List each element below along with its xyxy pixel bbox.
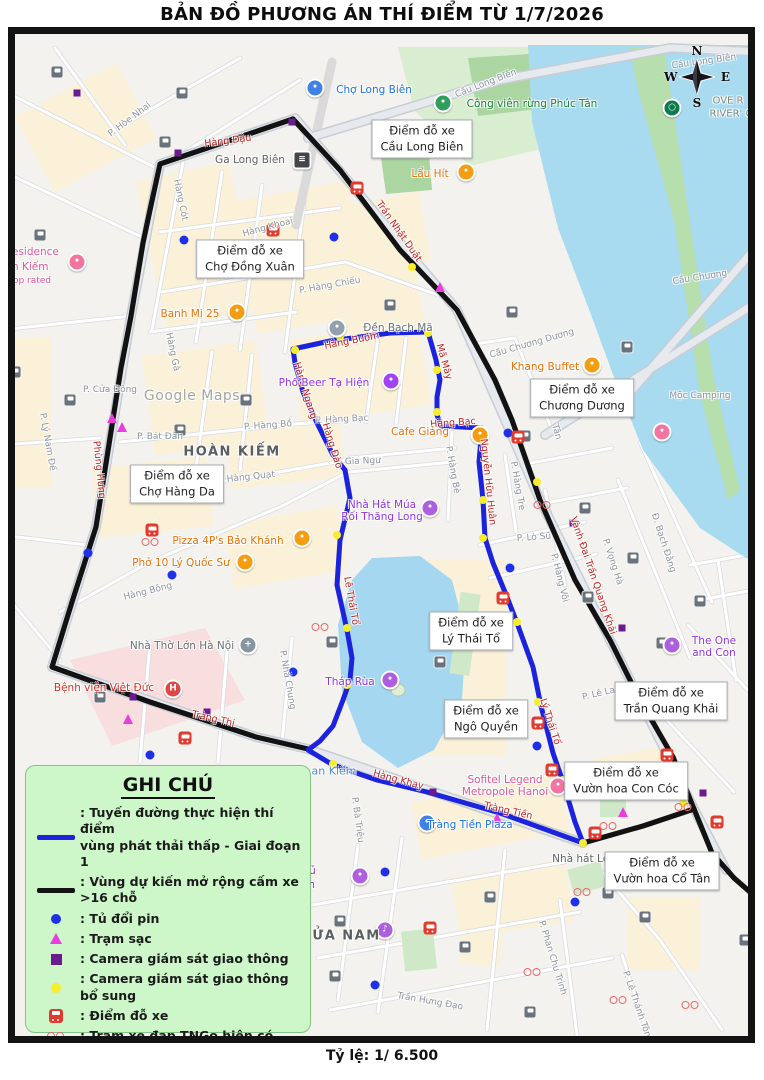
poi-label-line: The One [692,635,736,647]
road-label: P. Lê Lai [581,685,618,703]
poi-park-icon: • [434,94,453,113]
legend-item-camera-extra: : Camera giám sát giao thông bổ sung [32,971,302,1004]
poi-hotel-icon: • [653,423,672,442]
extra-camera-icon [433,408,441,416]
poi-label: The Oneand Con [692,635,736,659]
parking-station-line1: Điểm đỗ xe [539,382,625,398]
legend-label: : Camera giám sát giao thông bổ sung [80,971,302,1004]
charging-station-icon [117,422,127,432]
transit-stop-icon [739,934,752,947]
road-label: P. Phan Chu Trinh [536,920,568,997]
traffic-camera-icon [175,150,182,157]
battery-dot-icon [51,914,61,924]
poi-label: Banh Mi 25 [161,308,220,320]
transit-stop-icon [329,970,342,983]
black-route-line-icon [37,888,75,893]
parking-station-label: Điểm đỗ xeNgô Quyền [444,699,528,738]
poi-label: RIVER' C [710,108,753,120]
poi-label: Phở 10 Lý Quốc Sư [132,557,230,569]
tngo-bike-station-icon [312,622,329,632]
scale-note: Tỷ lệ: 1/ 6.500 [0,1048,764,1064]
district-label: CỬA NAM [301,930,380,945]
poi-label: Công viên rừng Phúc Tân [467,98,598,110]
poi-pin-icon: ○ [663,99,682,118]
parking-point-icon [661,749,674,762]
parking-station-line2: Chương Dương [539,398,625,414]
transit-stop-icon [240,394,253,407]
traffic-camera-icon [619,625,626,632]
road-label: Hàng Cót [171,178,190,221]
tngo-bike-station-icon [675,802,692,812]
parking-station-line1: Điểm đỗ xe [438,615,504,631]
legend-label: : Vùng dự kiến mở rộng cấm xe >16 chỗ [80,874,302,907]
legend-label: : Tuyến đường thực hiện thí điểm [80,805,274,836]
parking-station-label: Điểm đỗ xeCầu Long Biên [372,119,473,158]
poi-restaurant-icon: • [457,163,476,182]
transit-stop-icon [579,502,592,515]
parking-station-line2: Chợ Hàng Da [139,484,215,500]
legend-item-battery: : Tủ đổi pin [32,911,302,927]
parking-station-line2: Ngô Quyền [453,719,519,735]
blue-route-line-icon [37,835,75,840]
poi-restaurant-icon: • [236,553,255,572]
parking-station-line2: Vườn hoa Cổ Tân [614,871,711,887]
parking-station-label: Điểm đỗ xeChương Dương [530,378,634,417]
road-label: Vành Đai Trần Quang Khải [567,516,618,637]
battery-swap-icon [371,981,380,990]
poi-label: Nhà Thờ Lớn Hà Nội [130,640,234,652]
road-label: Mã Mây [433,343,454,381]
charging-station-icon [618,807,628,817]
road-label: Hàng Đào [319,422,343,470]
legend-label: : Điểm đỗ xe [80,1008,168,1024]
legend-label-line2: vùng phát thải thấp - Giai đoạn 1 [80,838,300,869]
transit-stop-icon [627,552,640,565]
parking-point-icon [351,182,364,195]
road-label: Cầu Chương [672,269,728,288]
poi-label: Khang Buffet [511,361,579,373]
parking-station-line2: Chợ Đồng Xuân [205,259,295,275]
road-label: Trần Hưng Đạo [396,991,463,1013]
charging-triangle-icon [50,933,62,944]
poi-label: Bệnh viện Việt Đức [54,682,154,694]
poi-label: Phố Beer Tạ Hiện [279,377,370,389]
poi-label: an Kiếm [312,766,357,779]
road-label: P. Bà Triệu [349,797,366,844]
traffic-camera-icon [430,789,437,796]
poi-label: Nhà Hát MúaRối Thăng Long [341,499,423,523]
poi-attraction-icon: • [381,671,400,690]
transit-stop-icon [434,656,447,669]
parking-station-line1: Điểm đỗ xe [381,123,464,139]
parking-station-line2: Vườn hoa Con Cóc [573,781,679,797]
compass-rose: N S W E [679,59,715,95]
tngo-bike-station-icon [610,995,627,1005]
parking-point-icon [497,592,510,605]
compass-s: S [693,96,702,110]
poi-label: Chợ Long Biên [336,84,412,96]
tngo-bike-station-icon [574,887,591,897]
traffic-camera-icon [130,694,137,701]
traffic-camera-icon [289,119,296,126]
poi-shop-icon: • [306,79,325,98]
road-label: P. Hàng Bồ [244,419,293,433]
transit-stop-icon [64,394,77,407]
legend-item-charging: : Trạm sạc [32,931,302,947]
parking-station-line2: Lý Thái Tổ [438,631,504,647]
transit-stop-icon [159,136,172,149]
extra-camera-icon [333,531,341,539]
road-label: Tràng Thi [190,710,235,730]
poi-restaurant-icon: • [293,529,312,548]
road-label: P. Hàng Quạt [217,470,276,486]
tngo-bike-station-icon [534,500,551,510]
legend-label: : Tủ đổi pin [80,911,159,927]
compass-e: E [721,70,730,84]
poi-label-line: Nhà Hát Múa [341,499,423,511]
poi-label-line: Metropole Hanoi [462,786,548,798]
road-label: P. Hàng Bè [443,445,462,494]
legend-item-bike: : Trạm xe đạp TNGo hiện có [32,1028,302,1043]
road-label: P. Hàng Chiếu [299,276,362,297]
legend-label: : Trạm sạc [80,931,152,947]
road-label: Cầu Long Biên [454,68,518,101]
transit-stop-icon [459,941,472,954]
page-title: BẢN ĐỒ PHƯƠNG ÁN THÍ ĐIỂM TỪ 1/7/2026 [0,4,764,25]
road-label: P. Bát Đàn [137,432,183,442]
poi-label-line: and Con [692,647,736,659]
battery-swap-icon [506,564,515,573]
transit-stop-icon [51,66,64,79]
extra-camera-icon [291,346,299,354]
road-label: Đ. Bạch Đằng [649,512,678,574]
poi-label: an Kiếm [8,261,48,273]
parking-point-icon [424,922,437,935]
legend-label: : Trạm xe đạp TNGo hiện có [80,1028,273,1043]
poi-label: Residence [8,246,59,258]
legend-item-camera: : Camera giám sát giao thông [32,951,302,967]
road-label: P. Hàng Tre [508,461,527,512]
road-label: Tân [549,423,563,441]
map-content: ••••••••••••••+H••••○♪≡Cầu Long BiênCầu … [8,27,755,1043]
extra-camera-icon [533,478,541,486]
charging-station-icon [107,413,117,423]
parking-station-line1: Điểm đỗ xe [205,243,295,259]
tngo-bike-station-icon [600,821,617,831]
road-label: P. Hàng Vôi [548,553,570,604]
road-label: Lê Thái Tổ [340,576,359,626]
parking-station-label: Điểm đỗ xeLý Thái Tổ [429,611,513,650]
extra-camera-icon [513,618,521,626]
poi-label: Lẩu Hít [411,168,448,180]
parking-point-icon [512,431,525,444]
tngo-bike-station-icon [524,967,541,977]
parking-station-line1: Điểm đỗ xe [453,703,519,719]
battery-swap-icon [533,742,542,751]
poi-attraction-icon: • [663,636,682,655]
transit-stop-icon [326,636,339,649]
road-label: Ga Long Biên [215,154,285,166]
map-poster: BẢN ĐỒ PHƯƠNG ÁN THÍ ĐIỂM TỪ 1/7/2026 ••… [0,0,764,1080]
poi-attraction-icon: • [421,499,440,518]
transit-stop-icon [34,229,47,242]
poi-label: Đền Bạch Mã [363,322,433,334]
road-label: P. Lý Nam Đế [37,412,57,471]
parking-station-label: Điểm đỗ xeTrần Quang Khải [615,681,728,720]
map-frame: ••••••••••••••+H••••○♪≡Cầu Long BiênCầu … [8,27,755,1043]
parking-point-icon [179,732,192,745]
battery-swap-icon [180,236,189,245]
road-label: Phùng Hưng [90,441,107,500]
poi-hotel-icon: • [68,253,87,272]
legend-item-blue-route: : Tuyến đường thực hiện thí điểm vùng ph… [32,805,302,870]
poi-label: Tràng Tiền Plaza [427,819,512,831]
transit-stop-icon [621,341,634,354]
road-label: Hàng Bông [123,581,174,603]
district-label: HOÀN KIẾM [183,446,280,461]
road-label: Mộc Camping [669,391,730,401]
road-label: Cầu Chương Dương [489,327,576,361]
legend-title: GHI CHÚ [121,774,215,799]
poi-label: Google Maps [144,388,240,404]
extra-camera-icon [579,839,587,847]
poi-label: OVE R [713,95,744,107]
road-label: P. Hòe Nhai [107,101,154,140]
poi-attraction-icon: • [351,867,370,886]
poi-label-line: Rối Thăng Long [341,511,423,523]
charging-station-icon [123,714,133,724]
road-label: Hàng Đậu [204,134,252,151]
poi-label-line: Sofitel Legend [462,774,548,786]
transit-stop-icon [176,87,189,100]
poi-label: Top rated [9,276,51,286]
transit-stop-icon [384,299,397,312]
road-label: Hàng Gà [163,332,181,372]
poi-train-icon: ≡ [293,151,312,170]
poi-landmark-icon: • [328,319,347,338]
poi-label: Cafe Giảng [391,426,449,438]
compass-w: W [664,70,677,84]
charging-station-icon [435,282,445,292]
poi-restaurant-icon: • [228,303,247,322]
legend-item-parking: : Điểm đỗ xe [32,1008,302,1024]
battery-swap-icon [330,233,339,242]
transit-stop-icon [639,911,652,924]
road-label: P. Cửa Đông [83,385,137,395]
parking-station-line2: Cầu Long Biên [381,139,464,155]
battery-swap-icon [381,868,390,877]
parking-station-label: Điểm đỗ xeVườn hoa Con Cóc [564,761,688,800]
parking-station-line1: Điểm đỗ xe [624,685,719,701]
parking-bus-icon [49,1009,63,1023]
parking-point-icon [146,524,159,537]
transit-stop-icon [9,366,22,379]
poi-restaurant-icon: • [583,356,602,375]
poi-bar-icon: • [382,372,401,391]
battery-swap-icon [84,549,93,558]
poi-hospital-icon: H [164,680,183,699]
transit-stop-icon [334,915,347,928]
battery-swap-icon [571,898,580,907]
road-label: P. Lê Thánh Tông [620,970,654,1043]
poi-label: Tháp Rùa [325,676,374,688]
transit-stop-icon [524,1006,537,1019]
parking-station-label: Điểm đỗ xeChợ Đồng Xuân [196,239,304,278]
poi-label: Pizza 4P's Bảo Khánh [172,535,283,547]
transit-stop-icon [506,306,519,319]
parking-station-line1: Điểm đỗ xe [139,468,215,484]
transit-stop-icon [484,891,497,904]
road-label: P. Vọng Hà [600,538,625,587]
road-label: Hàng Ngang [290,361,318,421]
parking-point-icon [711,816,724,829]
compass-star-icon [679,59,715,95]
parking-station-label: Điểm đỗ xeVườn hoa Cổ Tân [605,851,720,890]
road-label: Trần Nhật Duật [373,199,423,264]
battery-swap-icon [168,571,177,580]
parking-station-line2: Trần Quang Khải [624,701,719,717]
legend-label: : Camera giám sát giao thông [80,951,289,967]
poi-church-icon: + [239,636,258,655]
traffic-camera-icon [700,790,707,797]
tngo-bike-station-icon [142,537,159,547]
battery-swap-icon [146,751,155,760]
road-label: Nguyễn Hữu Huân [477,438,497,526]
camera-square-icon [51,954,62,965]
road-label: Hàng Khay [372,769,425,793]
legend: GHI CHÚ : Tuyến đường thực hiện thí điểm… [25,765,311,1033]
parking-station-label: Điểm đỗ xeChợ Hàng Da [130,464,224,503]
extra-camera-icon [479,534,487,542]
legend-item-black-route: : Vùng dự kiến mở rộng cấm xe >16 chỗ [32,874,302,907]
tngo-bike-station-icon [682,1000,699,1010]
traffic-camera-icon [74,90,81,97]
transit-stop-icon [694,595,707,608]
parking-station-line1: Điểm đỗ xe [573,765,679,781]
road-label: P. Nhà Chung [277,650,298,711]
compass-n: N [692,44,703,58]
tngo-bike-icon [47,1031,65,1042]
parking-station-line1: Điểm đỗ xe [614,855,711,871]
camera-extra-dot-icon [51,983,61,993]
road-label: P. Lò Sũ [516,532,551,545]
poi-label: Sofitel LegendMetropole Hanoi [462,774,548,798]
